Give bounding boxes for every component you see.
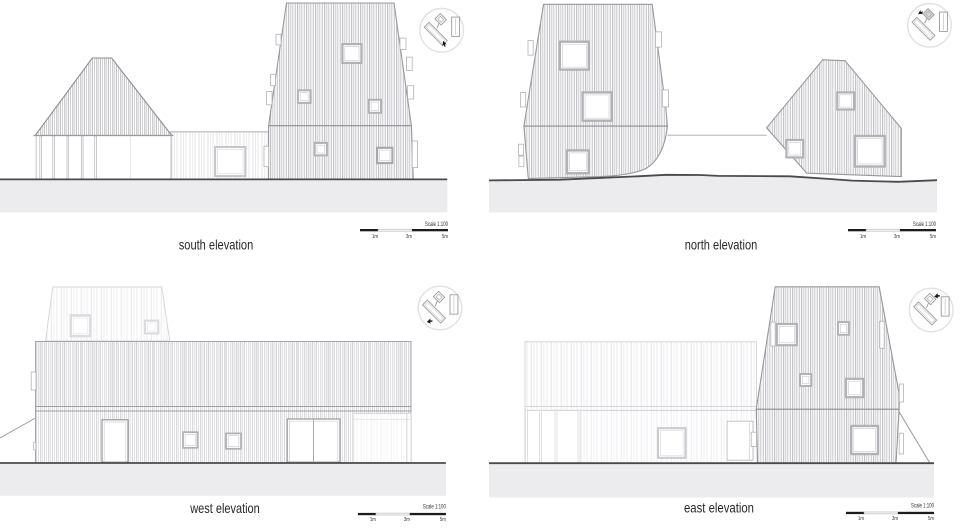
svg-text:Scale 1:100: Scale 1:100 — [911, 502, 934, 509]
svg-text:south elevation: south elevation — [179, 237, 254, 253]
svg-text:3m: 3m — [892, 516, 898, 522]
svg-text:west elevation: west elevation — [189, 500, 259, 516]
svg-text:5m: 5m — [440, 517, 446, 523]
svg-text:Scale 1:100: Scale 1:100 — [425, 221, 448, 228]
svg-text:3m: 3m — [404, 517, 410, 523]
svg-text:5m: 5m — [928, 516, 934, 522]
svg-text:1m: 1m — [370, 517, 376, 523]
svg-text:5m: 5m — [930, 234, 936, 240]
svg-text:north elevation: north elevation — [685, 237, 758, 253]
svg-text:Scale 1:100: Scale 1:100 — [913, 221, 936, 228]
svg-text:Scale 1:100: Scale 1:100 — [423, 504, 446, 511]
svg-text:east elevation: east elevation — [684, 500, 754, 516]
svg-text:1m: 1m — [372, 234, 378, 240]
svg-text:1m: 1m — [858, 516, 864, 522]
svg-text:1m: 1m — [860, 234, 866, 240]
svg-text:3m: 3m — [894, 234, 900, 240]
svg-text:3m: 3m — [406, 234, 412, 240]
svg-text:5m: 5m — [442, 234, 448, 240]
